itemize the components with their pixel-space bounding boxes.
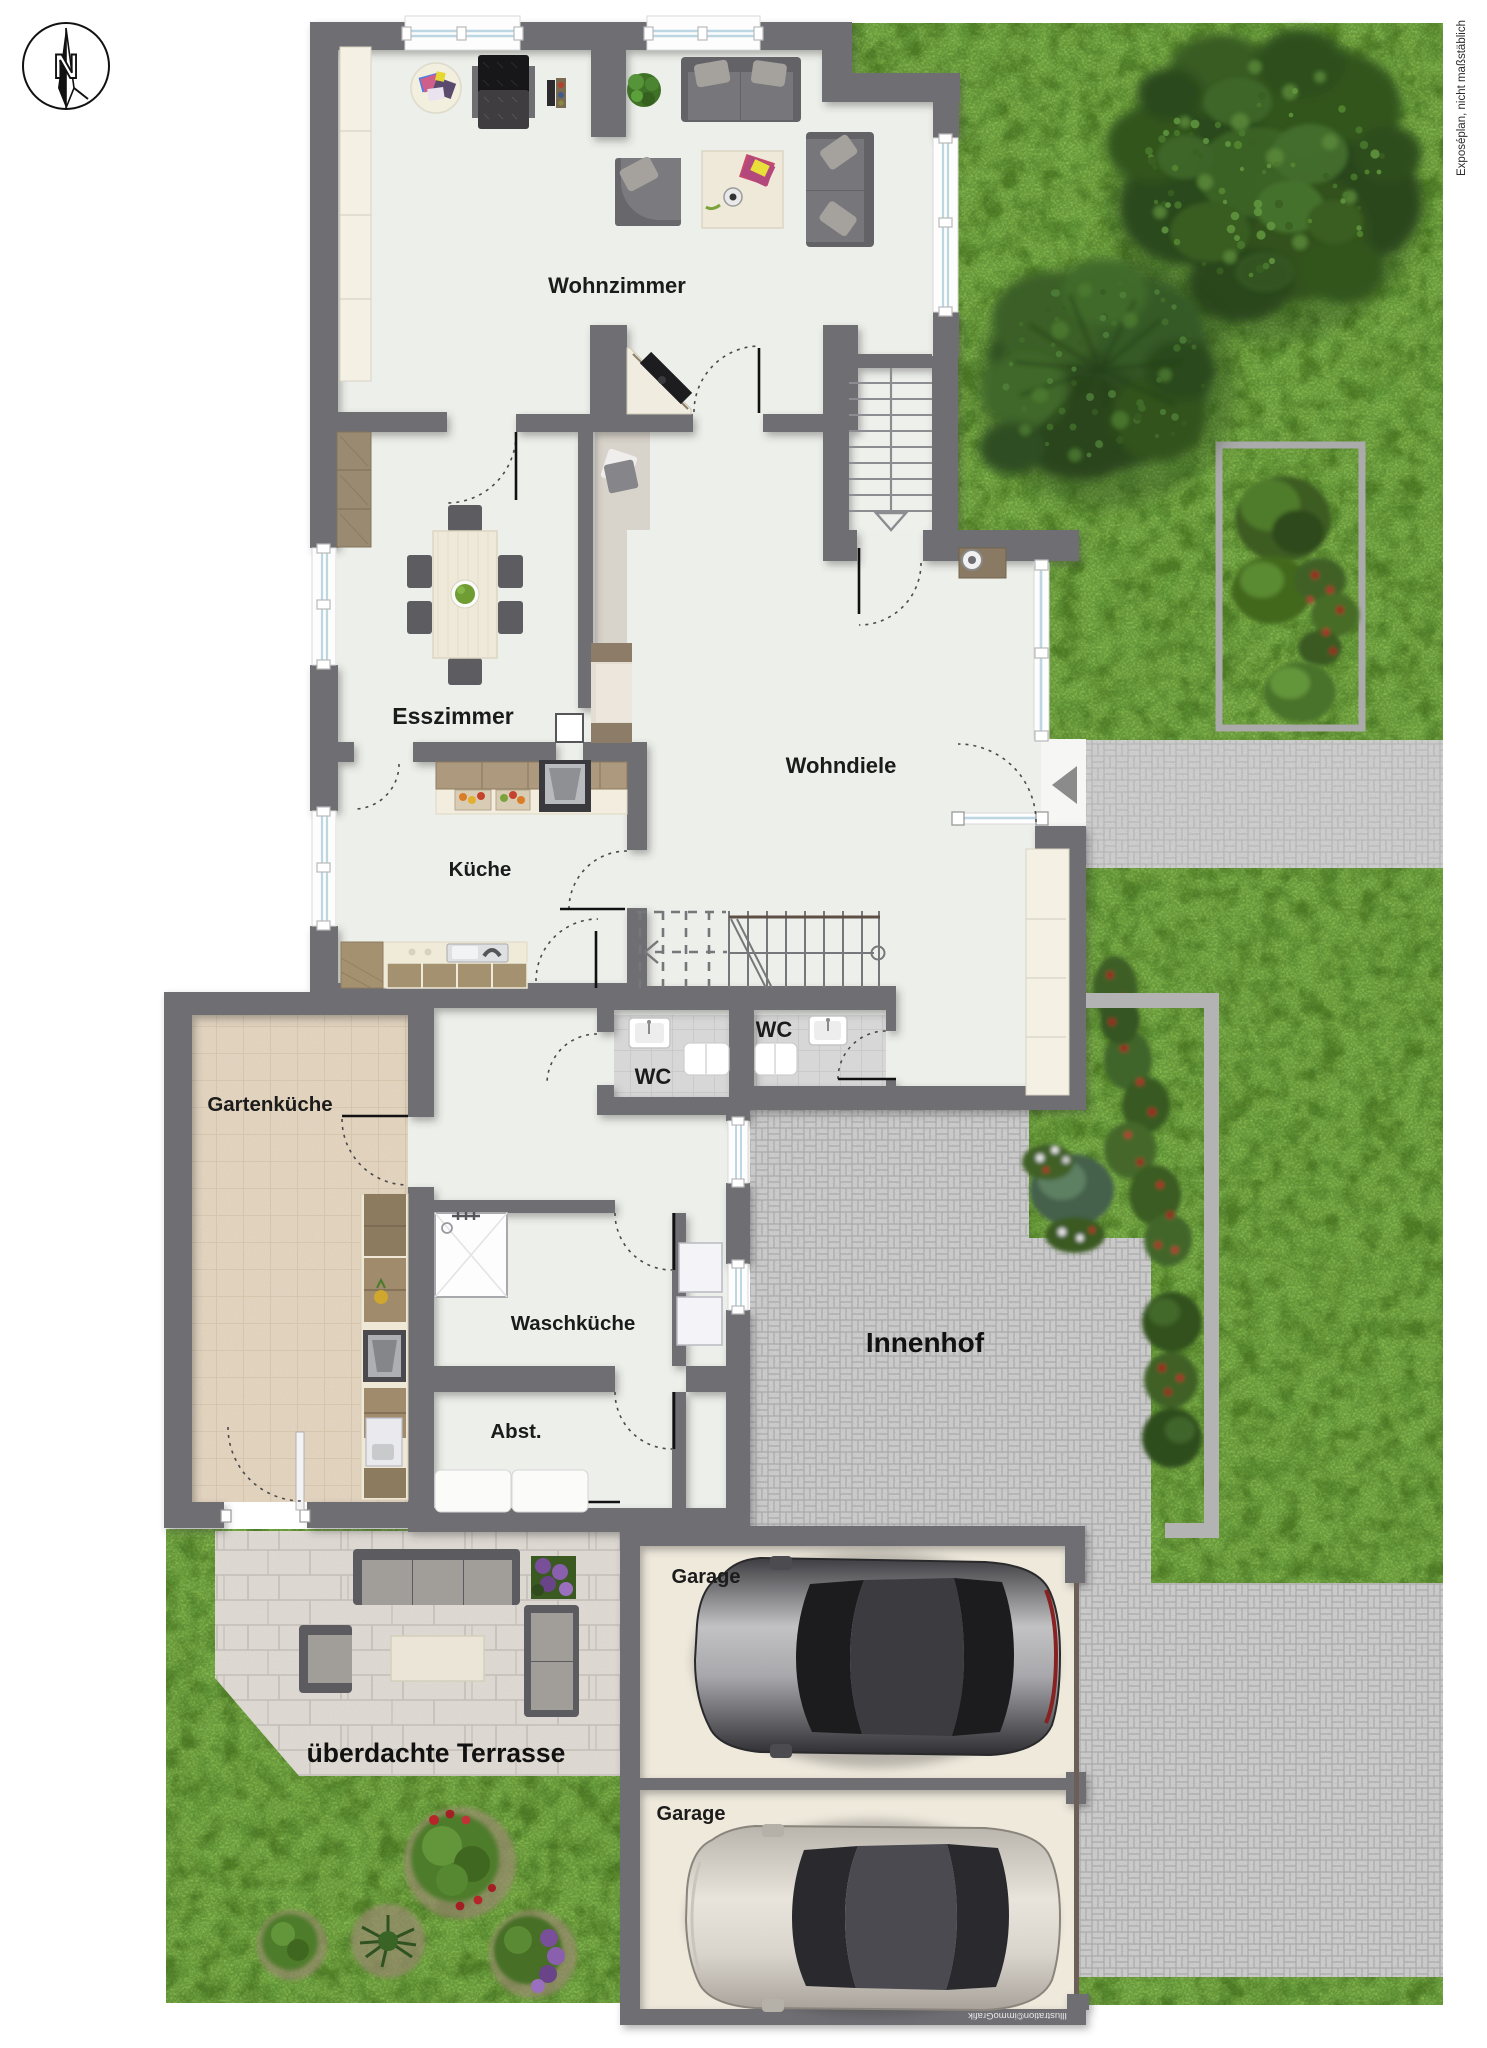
svg-text:überdachte Terrasse: überdachte Terrasse [307,1738,566,1768]
svg-text:Exposéplan, nicht maßstäblich: Exposéplan, nicht maßstäblich [1456,20,1468,176]
svg-text:Illustration©immoGrafik: Illustration©immoGrafik [968,2010,1067,2021]
svg-text:Abst.: Abst. [490,1420,541,1443]
svg-text:Wohndiele: Wohndiele [786,753,897,778]
svg-text:Garage: Garage [657,1803,726,1825]
svg-text:Waschküche: Waschküche [511,1312,636,1335]
svg-text:Garage: Garage [672,1566,741,1588]
svg-text:WC: WC [635,1064,672,1089]
svg-text:Küche: Küche [449,858,512,881]
svg-text:Innenhof: Innenhof [866,1327,985,1358]
svg-text:Wohnzimmer: Wohnzimmer [548,273,686,298]
svg-text:WC: WC [756,1017,793,1042]
svg-text:N: N [54,48,79,86]
svg-text:Gartenküche: Gartenküche [207,1093,332,1116]
svg-text:Esszimmer: Esszimmer [392,703,514,729]
